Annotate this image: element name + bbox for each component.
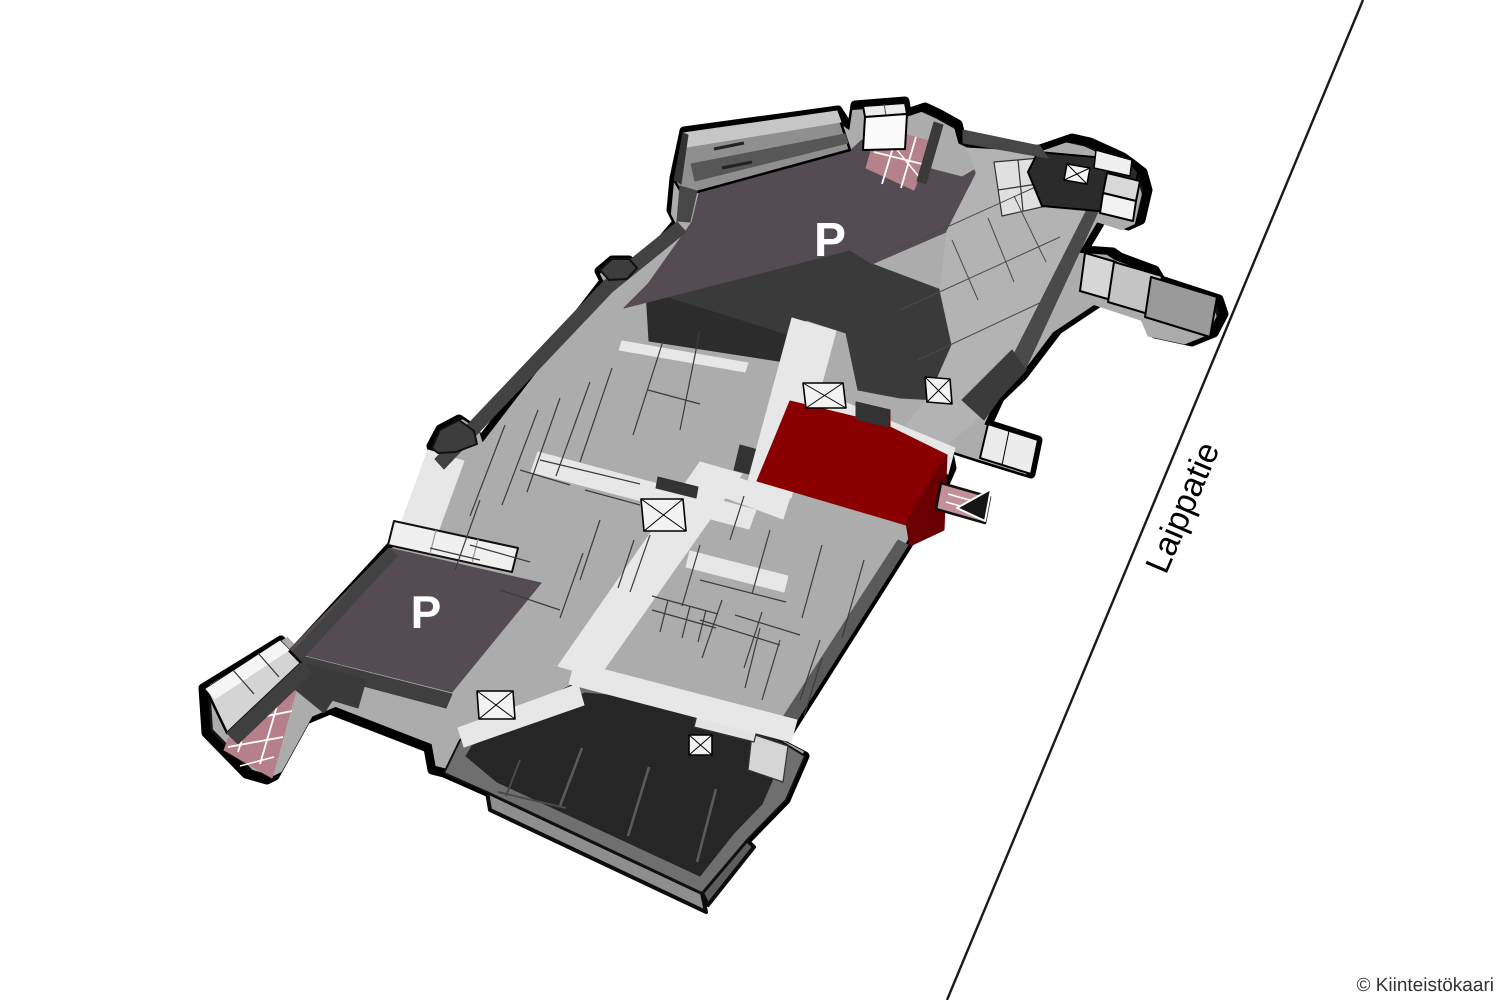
svg-text:P: P — [814, 214, 846, 267]
svg-text:© Kiinteistökaari: © Kiinteistökaari — [1356, 975, 1494, 996]
svg-text:P: P — [411, 586, 442, 638]
